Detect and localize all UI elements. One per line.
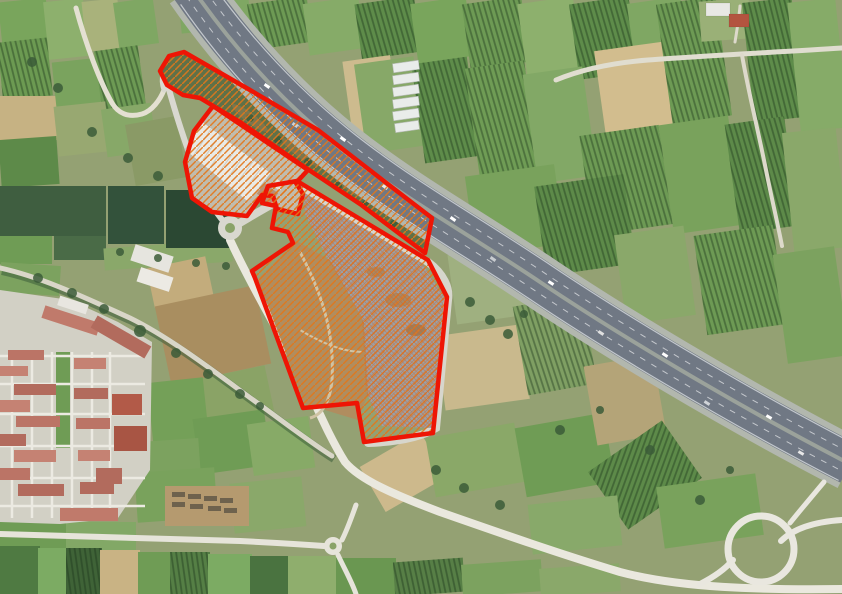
field-parcel [461, 559, 543, 594]
field-parcel [100, 550, 140, 594]
tree [555, 425, 565, 435]
tree [87, 127, 97, 137]
tree [171, 348, 181, 358]
tree [645, 445, 655, 455]
field-parcel [435, 324, 530, 410]
building [16, 416, 60, 427]
field-parcel [0, 96, 62, 140]
field-parcel [0, 236, 52, 264]
tree [154, 254, 162, 262]
field-parcel [0, 546, 40, 594]
building [0, 434, 26, 446]
tree [67, 288, 77, 298]
tree [459, 483, 469, 493]
tree [116, 248, 124, 256]
tree [256, 402, 264, 410]
building [78, 450, 110, 461]
tree [99, 304, 109, 314]
house [729, 14, 749, 27]
building [14, 384, 56, 395]
tree [695, 495, 705, 505]
tree [222, 262, 230, 270]
house [706, 3, 730, 16]
field-parcel [0, 186, 106, 236]
building [76, 418, 110, 429]
field-parcel [208, 554, 252, 594]
building [112, 394, 142, 415]
building [96, 468, 122, 484]
shed [172, 502, 185, 507]
tree [235, 389, 245, 399]
field-parcel [0, 0, 50, 44]
tree [465, 297, 475, 307]
tree [192, 259, 200, 267]
satellite-map-canvas[interactable] [0, 0, 842, 594]
tree [495, 500, 505, 510]
tree [520, 310, 528, 318]
building [8, 350, 44, 360]
tree [596, 406, 604, 414]
building [0, 400, 30, 412]
tree [503, 329, 513, 339]
pond [108, 186, 164, 244]
field-parcel [288, 556, 338, 594]
field-parcel [250, 556, 290, 594]
tree [203, 369, 213, 379]
building [18, 484, 64, 496]
tree [485, 315, 495, 325]
tree [123, 153, 133, 163]
building [74, 388, 108, 399]
tree [431, 465, 441, 475]
urban-park [56, 352, 70, 448]
building [0, 468, 30, 480]
building [14, 450, 56, 462]
tree [726, 466, 734, 474]
aerial-photo[interactable] [0, 0, 842, 594]
field-parcel [336, 558, 396, 594]
field-parcel [38, 548, 68, 594]
tree [27, 57, 37, 67]
building [0, 366, 28, 376]
shed [204, 496, 217, 501]
building [74, 358, 106, 369]
shed [188, 494, 201, 499]
shed [220, 498, 233, 503]
field-parcel [0, 136, 60, 188]
building [114, 426, 147, 451]
shed [190, 504, 203, 509]
field-parcel [138, 552, 172, 594]
tree [134, 325, 146, 337]
tree [153, 171, 163, 181]
shed [208, 506, 221, 511]
tree [33, 273, 43, 283]
field-parcel [113, 0, 159, 49]
shed [172, 492, 185, 497]
shed [224, 508, 237, 513]
building [60, 508, 118, 521]
tree [53, 83, 63, 93]
field-parcel [54, 236, 106, 260]
